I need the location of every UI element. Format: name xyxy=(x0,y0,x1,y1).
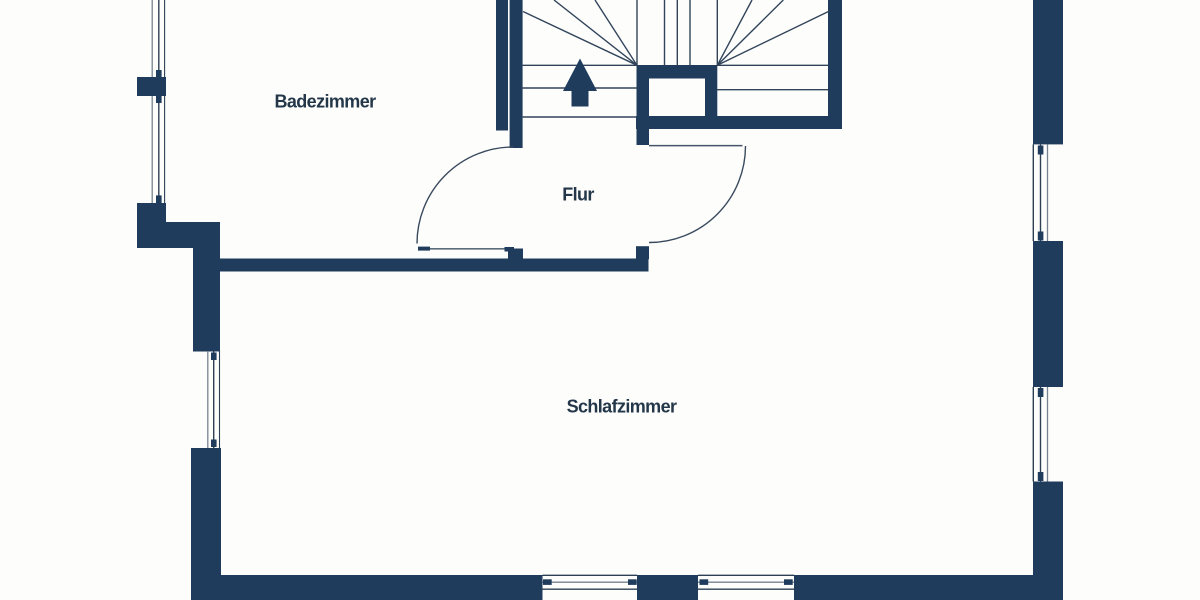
svg-text:Badezimmer: Badezimmer xyxy=(274,92,376,112)
svg-text:Flur: Flur xyxy=(562,185,594,205)
svg-text:Schlafzimmer: Schlafzimmer xyxy=(567,397,677,417)
